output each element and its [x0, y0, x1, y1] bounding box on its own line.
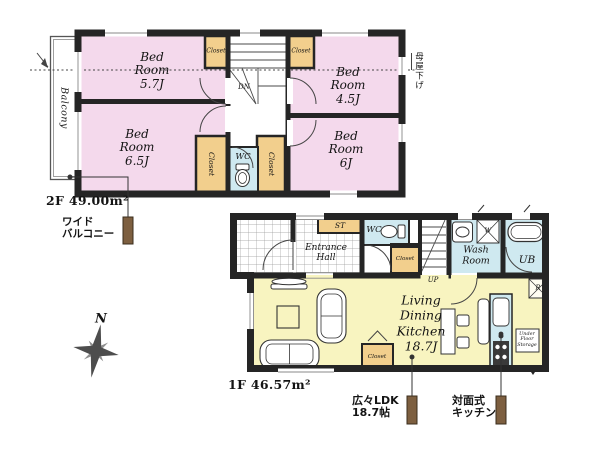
closet-w [196, 136, 227, 193]
balcony-outline [51, 37, 79, 180]
floorplan-page: Balcony Bed Room 5.7J Bed Room 4.5J Bed … [0, 0, 600, 450]
washer-box-icon [477, 220, 499, 243]
vanity-icon [453, 222, 473, 242]
closet-nw [205, 36, 228, 68]
toilet-icon-2f [236, 164, 250, 187]
floorplan-drawing [0, 0, 600, 450]
porch-tiles [236, 219, 293, 273]
underfloor-storage-box [516, 329, 539, 352]
st-closet [318, 219, 362, 233]
closet-ne [288, 36, 314, 68]
tv-board-icon [271, 278, 307, 289]
closet-e [257, 136, 285, 193]
compass-icon [69, 320, 124, 381]
bathtub-icon [508, 223, 544, 242]
closet-hall [391, 247, 419, 273]
toilet-icon-1f [381, 225, 405, 238]
